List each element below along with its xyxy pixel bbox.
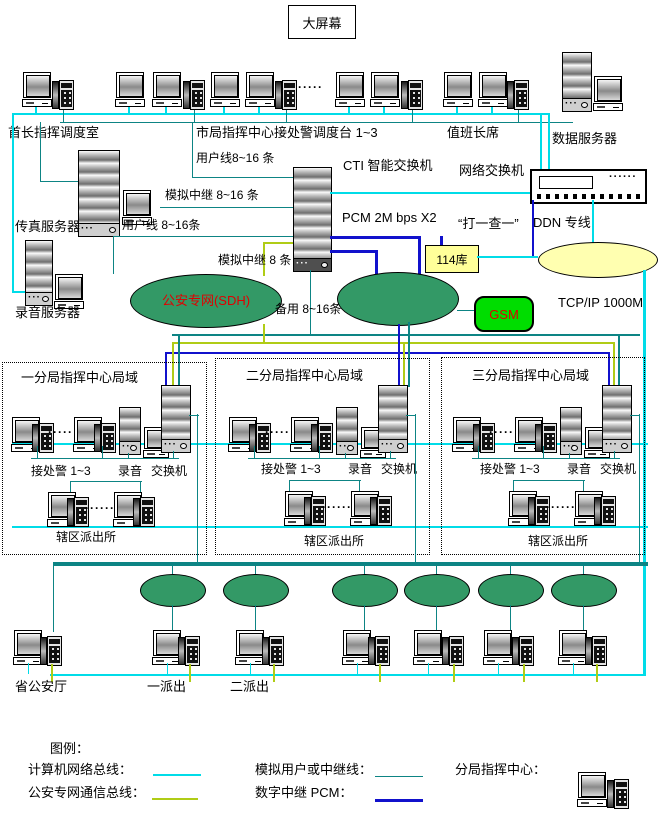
phone-handset-icon [133, 498, 140, 526]
chief-room-label: 首长指挥调度室 [8, 126, 99, 141]
lan-switch-riser [548, 113, 550, 170]
lan-drop [348, 107, 350, 113]
phone-keypad-icon [542, 423, 557, 453]
dispatch-phone-icon [183, 80, 205, 108]
cloud-downlink [583, 605, 584, 632]
branch-analog-drop [543, 446, 544, 458]
analog-bus-top [60, 122, 573, 123]
lan-drop [456, 107, 458, 113]
phone-handset-icon [183, 81, 190, 109]
monitor-icon [123, 190, 151, 216]
sdh-cloud-drop [263, 324, 265, 344]
cloud-downlink [510, 605, 511, 632]
phone-keypad-icon [190, 80, 205, 110]
legend-police-bus-swatch [152, 798, 198, 800]
branch-record-tower: ··· [560, 407, 582, 455]
phone-keypad-icon [449, 636, 464, 666]
phone-keypad-icon [318, 423, 333, 453]
analog-drop [194, 108, 195, 122]
station-cloud [404, 574, 470, 607]
lan-bus-top [12, 113, 548, 115]
branch2-station-label: 辖区派出所 [304, 535, 364, 549]
analog-drop [286, 108, 287, 122]
phone-keypad-icon [282, 80, 297, 110]
cloud-downlink [364, 605, 365, 632]
monitor-icon [211, 72, 239, 98]
cti-label: CTI 智能交换机 [343, 159, 433, 174]
data-server-tower: ··· [562, 52, 592, 112]
cloud-uplink [364, 566, 365, 574]
pcm-mid-bus [165, 352, 610, 354]
duty-workstation [478, 72, 508, 107]
station-workstation [483, 630, 513, 665]
phone-handset-icon [368, 637, 375, 665]
branch2-box: 二分局指挥中心局域 ····· ··· ··· 接处警 1~3 录音 交换机 ·… [215, 358, 430, 555]
branch2-pbx-downlink [415, 414, 416, 562]
monitor-icon [55, 274, 83, 300]
analog-trunk-1 [160, 207, 293, 208]
pc-base-icon [577, 799, 607, 807]
legend-computer-bus-label: 计算机网络总线： [28, 763, 132, 778]
legend-police-bus-label: 公安专网通信总线： [28, 786, 145, 801]
lan-cti-to-switch [330, 192, 530, 194]
phone-handset-icon [311, 424, 318, 452]
monitor-icon [414, 630, 442, 656]
cloud-downlink [172, 605, 173, 632]
branch-record-tower: ··· [336, 407, 358, 455]
analog-left-riser [40, 122, 41, 182]
monitor-icon [336, 72, 364, 98]
provincial-label: 省公安厅 [15, 680, 67, 695]
server-base-icon: ··· [26, 292, 52, 305]
lan-drop [28, 663, 29, 674]
station-phone-icon [368, 636, 390, 664]
pcm-line-2-drop [375, 250, 378, 275]
branch2-pbx-label: 交换机 [381, 463, 417, 477]
dispatch-phone-icon [401, 80, 423, 108]
phone-keypad-icon [59, 80, 74, 110]
dispatch-phone-icon [275, 80, 297, 108]
branch1-pbx-downlink [197, 414, 198, 562]
gsm-node: GSM [474, 296, 534, 332]
ddn-drop [592, 200, 594, 243]
switch-dots: ······ [609, 171, 637, 183]
lan-drop [498, 663, 499, 674]
big-screen-node: 大屏幕 [288, 5, 356, 39]
pc-base-icon [22, 99, 52, 107]
station1-phone-icon [178, 636, 200, 664]
legend-computer-bus-swatch [153, 774, 201, 776]
pc-base-icon [370, 99, 400, 107]
lan-left-riser [12, 113, 14, 293]
lan-114-to-ddn [477, 256, 538, 258]
station-cloud [551, 574, 617, 607]
police-net-drop [189, 664, 191, 682]
branch2-record-label: 录音 [348, 463, 372, 477]
analog-trunk-bus [53, 562, 648, 566]
branch1-title: 一分局指挥中心局域 [21, 371, 138, 386]
branch-analog-link [472, 458, 620, 459]
pc-base-icon [245, 99, 275, 107]
ellipsis-dots: ······ [85, 501, 115, 515]
record-server-label: 录音服务器 [15, 306, 80, 321]
server-base-icon: ··· [162, 439, 190, 452]
phone-keypad-icon [592, 636, 607, 666]
analog-trunk-2-label: 模拟中继 8 条 [218, 254, 291, 268]
pc-base-icon [478, 99, 508, 107]
lan-switch-riser [540, 113, 542, 170]
user-line-riser [192, 122, 193, 178]
station-phone-icon [585, 636, 607, 664]
branch-analog-drop [173, 451, 174, 458]
phone-handset-icon [304, 497, 311, 525]
phone-keypad-icon [47, 636, 62, 666]
ellipsis-dots: ····· [298, 80, 323, 94]
legend-branch-phone-icon [607, 779, 629, 807]
station-cloud [223, 574, 289, 607]
phone-handset-icon [370, 497, 377, 525]
police-net-drop [453, 664, 455, 682]
ddn-line-label: DDN 专线 [533, 216, 591, 231]
police-net-drop [596, 664, 598, 682]
city-dispatch-label: 市局指挥中心接处警调度台 1~3 [196, 126, 378, 141]
branch-analog-drop [569, 453, 570, 458]
monitor-icon [246, 72, 274, 98]
phone-keypad-icon [601, 496, 616, 526]
branch-analog-drop [614, 451, 615, 458]
branch-phone-icon [311, 423, 333, 451]
phone-handset-icon [607, 780, 614, 808]
duty-phone-icon [507, 80, 529, 108]
ellipsis-dots: ····· [48, 425, 73, 439]
phone-keypad-icon [269, 636, 284, 666]
cloud-uplink [172, 566, 173, 574]
duty-workstation [443, 72, 473, 107]
ellipsis-dots: ····· [265, 425, 290, 439]
phone-handset-icon [52, 81, 59, 109]
branch-analog-drop [37, 446, 38, 458]
legend-branch-center-label: 分局指挥中心： [455, 763, 546, 778]
switch-ports [537, 194, 640, 199]
analog-left-stub [40, 181, 78, 182]
phone-keypad-icon [377, 496, 392, 526]
cloud-downlink [436, 605, 437, 632]
legend-digital-pcm-label: 数字中继 PCM： [255, 786, 353, 801]
lan-drop [165, 107, 167, 113]
dispatch-workstation [115, 72, 145, 107]
server-base-icon: ··· [563, 98, 591, 111]
cloud-downlink [255, 605, 256, 632]
phone-keypad-icon [375, 636, 390, 666]
station-workstation [413, 630, 443, 665]
pc-base-icon [152, 99, 182, 107]
data-server-console [593, 76, 623, 111]
station-phone-icon [512, 636, 534, 664]
gsm-label: GSM [489, 307, 519, 322]
lan-drop [383, 107, 385, 113]
ellipsis-dots: ······ [322, 500, 352, 514]
branch2-dispatch-label: 接处警 1~3 [261, 463, 321, 477]
backup-label: 备用 8~16条 [275, 303, 341, 317]
server-base-icon: ··· [120, 441, 140, 454]
tcpip-label: TCP/IP 1000M [558, 296, 643, 311]
branch-phone-icon [94, 423, 116, 451]
monitor-icon [594, 76, 622, 102]
phone-keypad-icon [185, 636, 200, 666]
server-base-icon: ··· [603, 439, 631, 452]
user-line-2-riser [113, 236, 114, 274]
branch3-record-label: 录音 [567, 463, 591, 477]
monitor-icon [14, 630, 42, 656]
lan-drop [428, 663, 429, 674]
phone-handset-icon [507, 81, 514, 109]
fax-server-tower: ··· [78, 150, 120, 237]
phone-keypad-icon [101, 423, 116, 453]
branch1-box: 一分局指挥中心局域 ····· ··· ··· 接处警 1~3 录音 交换机 ·… [2, 362, 207, 555]
pcm-label: PCM 2M bps X2 [342, 211, 437, 226]
phone-keypad-icon [140, 497, 155, 527]
dispatch-workstation [370, 72, 400, 107]
legend-branch-center-icon [577, 772, 607, 807]
legend-analog-line-swatch [375, 776, 423, 777]
monitor-icon [559, 630, 587, 656]
analog-mid-bus [172, 334, 640, 336]
branch-station-link [70, 481, 142, 482]
pc-base-icon [115, 99, 145, 107]
gsm-link [457, 310, 474, 311]
cloud-uplink [510, 566, 511, 574]
legend-title: 图例： [50, 742, 89, 757]
branch-station-link [289, 480, 361, 481]
monitor-icon [484, 630, 512, 656]
phone-handset-icon [535, 424, 542, 452]
branch-analog-drop [478, 446, 479, 458]
branch-analog-drop [390, 451, 391, 458]
cloud-uplink [583, 566, 584, 574]
pcm-switch-drop [532, 200, 534, 257]
phone-handset-icon [528, 497, 535, 525]
phone-keypad-icon [614, 779, 629, 809]
monitor-icon [479, 72, 507, 98]
branch-analog-link [248, 458, 396, 459]
branch3-pbx-label: 交换机 [600, 463, 636, 477]
branch3-pbx-downlink [639, 414, 640, 562]
cloud-uplink [255, 566, 256, 574]
pc-base-icon [210, 99, 240, 107]
pc-base-icon [593, 103, 623, 111]
analog-drop [412, 108, 413, 122]
user-line-2 [113, 236, 293, 237]
pc-base-icon [443, 99, 473, 107]
pcm-line-1-drop [418, 236, 421, 275]
branch2-title: 二分局指挥中心局域 [246, 369, 363, 384]
server-base-icon: ··· [379, 439, 407, 452]
server-base-icon: ··· [294, 258, 331, 271]
legend-digital-pcm-swatch [375, 799, 423, 802]
phone-handset-icon [442, 637, 449, 665]
fax-server-label: 传真服务器 [15, 220, 80, 235]
monitor-icon [371, 72, 399, 98]
sdh-cloud: 公安专网(SDH) [130, 274, 282, 328]
station1-label: 一派出 [147, 680, 186, 695]
user-line-2-label: 用户线 8~16条 [122, 219, 200, 233]
phone-handset-icon [594, 497, 601, 525]
branch1-record-label: 录音 [118, 465, 142, 479]
net-switch-label: 网络交换机 [459, 164, 524, 179]
station-phone-icon [133, 497, 155, 525]
phone-handset-icon [275, 81, 282, 109]
station-phone-icon [442, 636, 464, 664]
station2-workstation [235, 630, 265, 665]
lan-drop [35, 107, 37, 113]
branch1-dispatch-label: 接处警 1~3 [31, 465, 91, 479]
ellipsis-dots: ····· [489, 425, 514, 439]
dispatch-workstation [210, 72, 240, 107]
ddn-cloud [538, 242, 658, 278]
branch-station-link [513, 480, 585, 481]
duty-chief-label: 值班长席 [447, 126, 499, 141]
dispatch-workstation [152, 72, 182, 107]
branch-pbx-tower: ··· [161, 385, 191, 453]
switch-display [539, 176, 593, 189]
analog-trunk-1-label: 模拟中继 8~16 条 [165, 189, 259, 203]
pcm-line-1 [330, 236, 421, 239]
phone-handset-icon [262, 637, 269, 665]
phone-handset-icon [40, 637, 47, 665]
phone-keypad-icon [408, 80, 423, 110]
lan-drop [491, 107, 493, 113]
provincial-drop [53, 566, 54, 632]
monitor-icon [153, 72, 181, 98]
phone-handset-icon [178, 637, 185, 665]
pstn-cloud [337, 272, 459, 326]
branch-analog-drop [319, 446, 320, 458]
station-cloud [332, 574, 398, 607]
branch-analog-drop [102, 446, 103, 458]
monitor-icon [236, 630, 264, 656]
pcm-line-2 [330, 250, 378, 253]
dispatch-workstation [245, 72, 275, 107]
branch1-station-label: 辖区派出所 [56, 531, 116, 545]
chief-workstation [22, 72, 52, 107]
police-net-drop [273, 664, 275, 682]
dispatch-workstation [335, 72, 365, 107]
branch-pbx-tower: ··· [602, 385, 632, 453]
phone-handset-icon [94, 424, 101, 452]
lan-drop [128, 107, 130, 113]
legend-analog-line-label: 模拟用户或中继线： [255, 763, 372, 778]
phone-keypad-icon [519, 636, 534, 666]
server-base-icon: ··· [337, 441, 357, 454]
db114-node: 114库 [425, 245, 479, 273]
monitor-icon [153, 630, 181, 656]
phone-handset-icon [67, 498, 74, 526]
server-base-icon: ··· [561, 441, 581, 454]
data-server-label: 数据服务器 [552, 132, 617, 147]
branch-analog-drop [254, 446, 255, 458]
cloud-uplink [436, 566, 437, 574]
branch-record-tower: ··· [119, 407, 141, 455]
branch-pbx-tower: ··· [378, 385, 408, 453]
phone-handset-icon [401, 81, 408, 109]
network-switch-node: ······ [530, 169, 647, 204]
sdh-cloud-label: 公安专网(SDH) [162, 294, 250, 309]
branch3-station-label: 辖区派出所 [528, 535, 588, 549]
lan-drop [357, 663, 358, 674]
phone-handset-icon [585, 637, 592, 665]
branch3-title: 三分局指挥中心局域 [472, 369, 589, 384]
branch-analog-drop [345, 453, 346, 458]
da-yi-cha-yi-label: “打一查一” [458, 217, 519, 232]
police-net-bus [172, 342, 615, 344]
station-cloud [140, 574, 206, 607]
lan-drop [573, 663, 574, 674]
user-line-1-label: 用户线8~16 条 [196, 152, 274, 166]
lan-drop [223, 107, 225, 113]
station2-label: 二派出 [230, 680, 269, 695]
monitor-icon [116, 72, 144, 98]
lan-drop [258, 107, 260, 113]
police-net-drop [523, 664, 525, 682]
record-server-console [54, 274, 84, 309]
chief-phone-icon [52, 80, 74, 108]
branch3-dispatch-label: 接处警 1~3 [480, 463, 540, 477]
phone-handset-icon [512, 637, 519, 665]
lan-bottom-bus [50, 674, 646, 676]
branch-phone-icon [535, 423, 557, 451]
station-phone-icon [370, 496, 392, 524]
analog-drop [63, 108, 64, 122]
lan-drop [250, 663, 251, 674]
db114-label: 114库 [436, 251, 467, 268]
monitor-icon [578, 772, 606, 798]
user-line-1 [192, 177, 293, 178]
ellipsis-dots: ······ [546, 500, 576, 514]
branch-analog-drop [128, 453, 129, 458]
lan-left-stub [12, 291, 26, 293]
police-net-drop [379, 664, 381, 682]
big-screen-label: 大屏幕 [302, 13, 341, 32]
record-server-tower: ··· [25, 240, 53, 306]
station-workstation [558, 630, 588, 665]
analog-drop [518, 108, 519, 122]
cti-switch-tower: ··· [293, 167, 332, 272]
monitor-icon [444, 72, 472, 98]
provincial-phone-icon [40, 636, 62, 664]
branch3-box: 三分局指挥中心局域 ····· ··· ··· 接处警 1~3 录音 交换机 ·… [441, 357, 645, 555]
sdh-link-h [263, 242, 293, 244]
phone-keypad-icon [514, 80, 529, 110]
server-base-icon: ··· [79, 223, 119, 236]
monitor-icon [23, 72, 51, 98]
station2-phone-icon [262, 636, 284, 664]
pc-base-icon [335, 99, 365, 107]
monitor-icon [343, 630, 371, 656]
provincial-workstation [13, 630, 43, 665]
lan-drop [167, 663, 168, 674]
network-topology-diagram: 大屏幕 ····· ··· 首长指挥调度室 市局指挥中心接处警调度台 1~3 值… [0, 0, 659, 835]
station-phone-icon [594, 496, 616, 524]
branch-analog-link [31, 458, 179, 459]
branch1-pbx-label: 交换机 [151, 465, 187, 479]
station-cloud [478, 574, 544, 607]
